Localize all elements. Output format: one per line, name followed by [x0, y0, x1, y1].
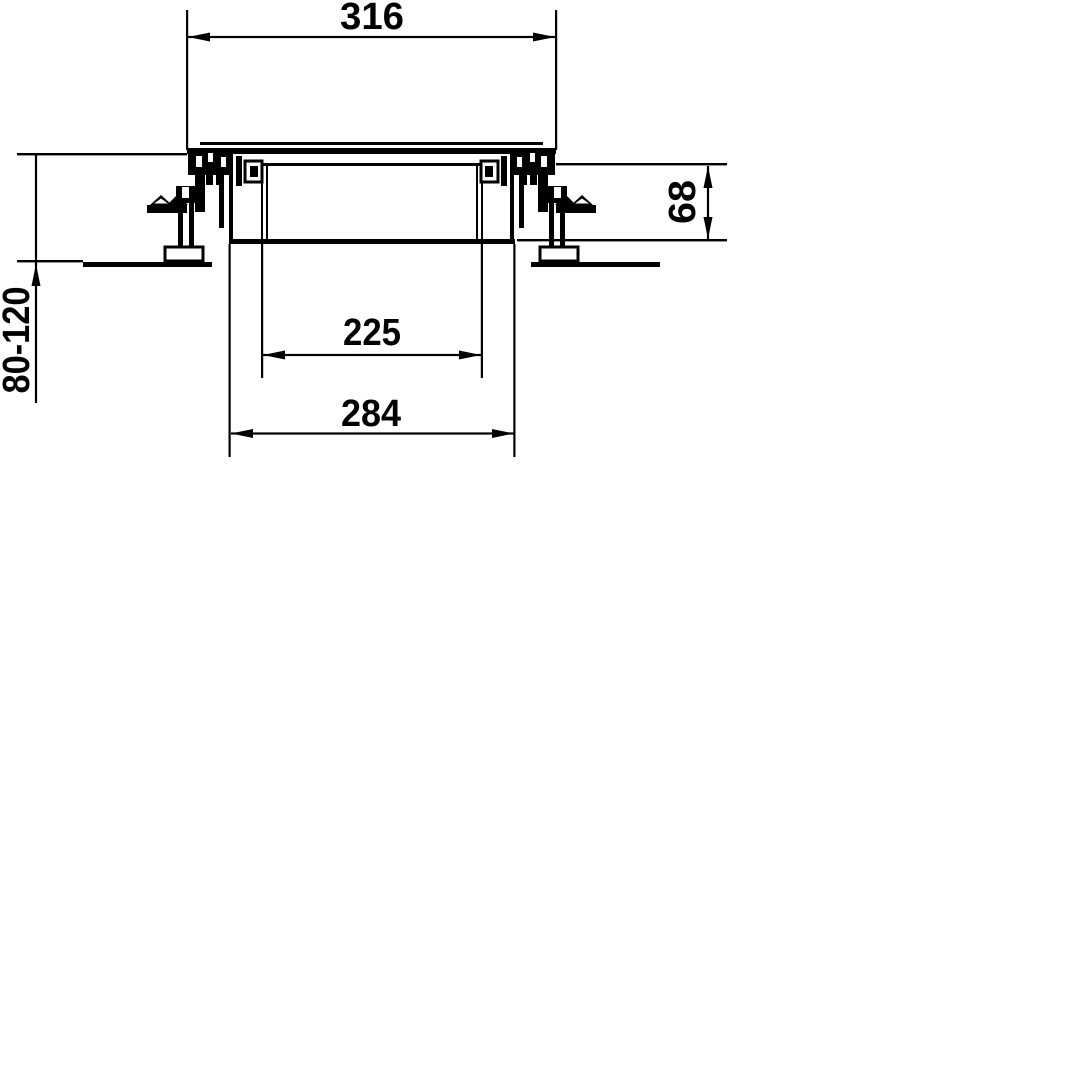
technical-drawing: 316 68 [0, 0, 1080, 1080]
box-inner-wall-right-a [476, 164, 478, 240]
extension-line-right [555, 10, 557, 150]
corner-clamp-left [236, 156, 262, 186]
box-flange-line [261, 163, 483, 166]
extension-line-right [513, 244, 515, 457]
dim-label-height-range: 80-120 [0, 287, 38, 394]
drawing-canvas: 316 68 [0, 0, 1080, 1080]
dimension-line [263, 354, 481, 356]
corner-clamp-right [481, 156, 507, 186]
extension-line-bottom [517, 239, 727, 241]
dim-label-top-width: 316 [340, 0, 404, 38]
extension-line-left [261, 244, 263, 378]
cover-lid [187, 142, 556, 154]
dim-label-outer-width: 284 [341, 393, 401, 435]
lid-plate [187, 148, 556, 154]
extension-line-left [186, 10, 188, 150]
extension-line-right [481, 244, 483, 378]
dim-label-inner-width: 225 [343, 312, 401, 354]
lid-top-line [200, 142, 543, 145]
box-inner-wall-left-b [266, 164, 268, 240]
box-bottom [229, 239, 515, 244]
extension-line-bottom [17, 260, 83, 262]
floor-level-line-left [17, 153, 187, 155]
dim-label-depth: 68 [662, 180, 704, 224]
extension-line-left [229, 244, 231, 457]
extension-line-top [556, 163, 727, 165]
